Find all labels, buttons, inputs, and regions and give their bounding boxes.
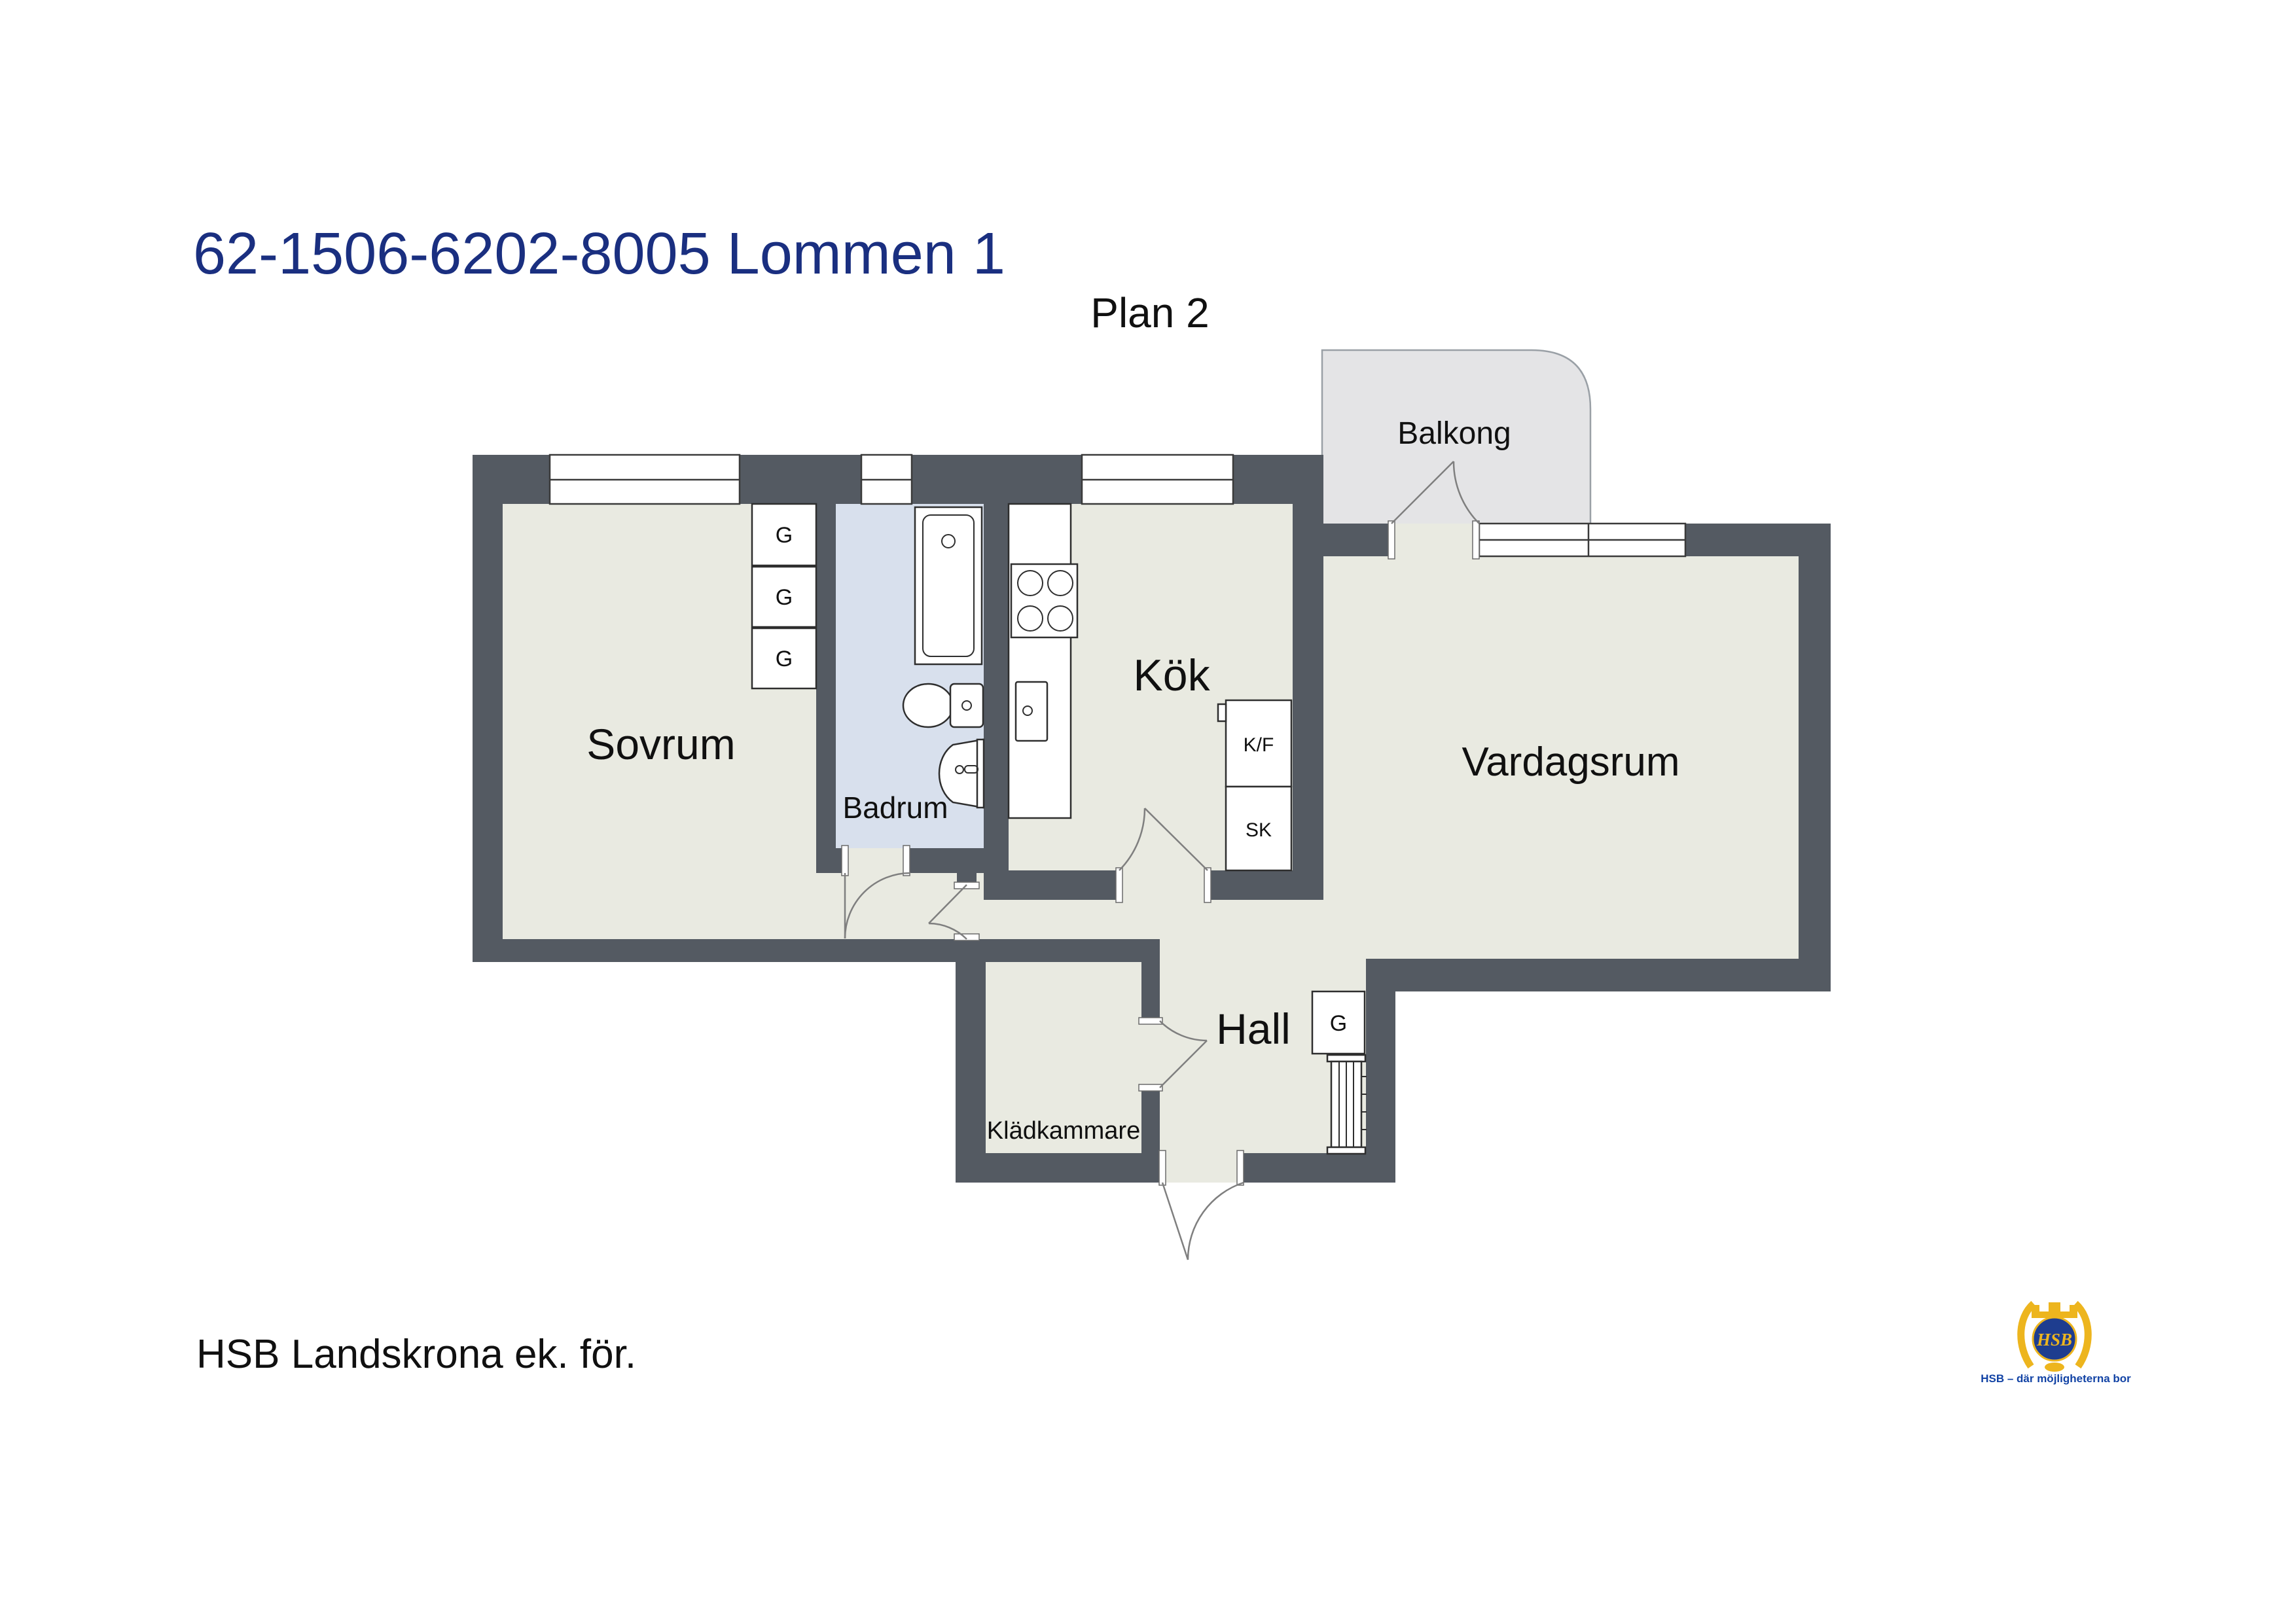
window-vardagsrum	[1479, 524, 1685, 556]
room-label-vardagsrum: Vardagsrum	[1462, 740, 1679, 785]
fridge-freezer-unit: K/F	[1218, 700, 1291, 787]
opening-kladkammare	[1141, 1021, 1160, 1088]
room-label-kok: Kök	[1133, 651, 1210, 700]
opening-badrum	[845, 848, 910, 873]
fridge-freezer-label: K/F	[1244, 734, 1274, 756]
room-label-badrum: Badrum	[842, 791, 948, 825]
room-label-balkong: Balkong	[1397, 416, 1511, 451]
kitchen-counter	[1009, 504, 1071, 818]
wall-right-outer	[1799, 524, 1831, 991]
wall-badrum-left	[816, 504, 836, 873]
window-kok	[1082, 455, 1233, 504]
floor-sovrum-ext	[816, 873, 957, 939]
floor-plan-svg: 62-1506-6202-8005 Lommen 1 Plan 2 Balkon…	[0, 0, 2296, 1623]
wardrobe-sovrum-1: G	[752, 504, 816, 565]
room-label-kladkammare: Klädkammare	[987, 1117, 1140, 1145]
wall-sovrum-bottom	[473, 939, 1160, 962]
plan-label: Plan 2	[1090, 289, 1209, 336]
opening-kok	[1119, 870, 1208, 900]
hsb-monogram: HSB	[2036, 1330, 2072, 1349]
svg-text:G: G	[776, 523, 793, 548]
kitchen-sink	[1016, 682, 1047, 741]
window-badrum	[861, 455, 912, 504]
wall-left	[473, 455, 503, 962]
page-title: 62-1506-6202-8005 Lommen 1	[193, 221, 1005, 287]
hsb-caption: HSB – där möjligheterna bor	[1981, 1372, 2131, 1385]
wall-kok-bottom-left	[984, 870, 1119, 900]
cabinet-label: SK	[1246, 819, 1272, 841]
toilet	[903, 684, 983, 727]
balcony: Balkong	[1322, 350, 1590, 525]
footer-text: HSB Landskrona ek. för.	[196, 1332, 636, 1377]
room-label-hall: Hall	[1216, 1005, 1291, 1053]
wardrobe-sovrum-2: G	[752, 567, 816, 627]
svg-text:G: G	[776, 585, 793, 610]
cleaning-cabinet-unit: SK	[1226, 787, 1291, 870]
wall-badrum-right	[984, 504, 1009, 873]
stove	[1011, 564, 1077, 637]
hsb-logo: HSB HSB – där möjligheterna bor	[1981, 1302, 2131, 1385]
bathtub	[915, 507, 982, 664]
hsb-crest-icon: HSB	[2021, 1302, 2089, 1372]
svg-text:G: G	[1330, 1011, 1347, 1036]
wardrobe-hall: G	[1312, 991, 1365, 1054]
wardrobe-sovrum-3: G	[752, 628, 816, 688]
wall-kok-bottom-right	[1208, 870, 1323, 900]
wall-kladkammare-left	[956, 962, 986, 1183]
radiator	[1327, 1055, 1367, 1154]
window-sovrum	[550, 455, 740, 504]
page: 62-1506-6202-8005 Lommen 1 Plan 2 Balkon…	[0, 0, 2296, 1623]
opening-balcony	[1391, 524, 1479, 556]
wall-vardagsrum-bottom	[1366, 959, 1831, 991]
svg-text:G: G	[776, 647, 793, 671]
wall-vardagsrum-top-left	[1293, 524, 1391, 556]
room-label-sovrum: Sovrum	[586, 720, 735, 768]
wall-kok-right	[1293, 455, 1323, 900]
opening-entry	[1162, 1153, 1244, 1183]
